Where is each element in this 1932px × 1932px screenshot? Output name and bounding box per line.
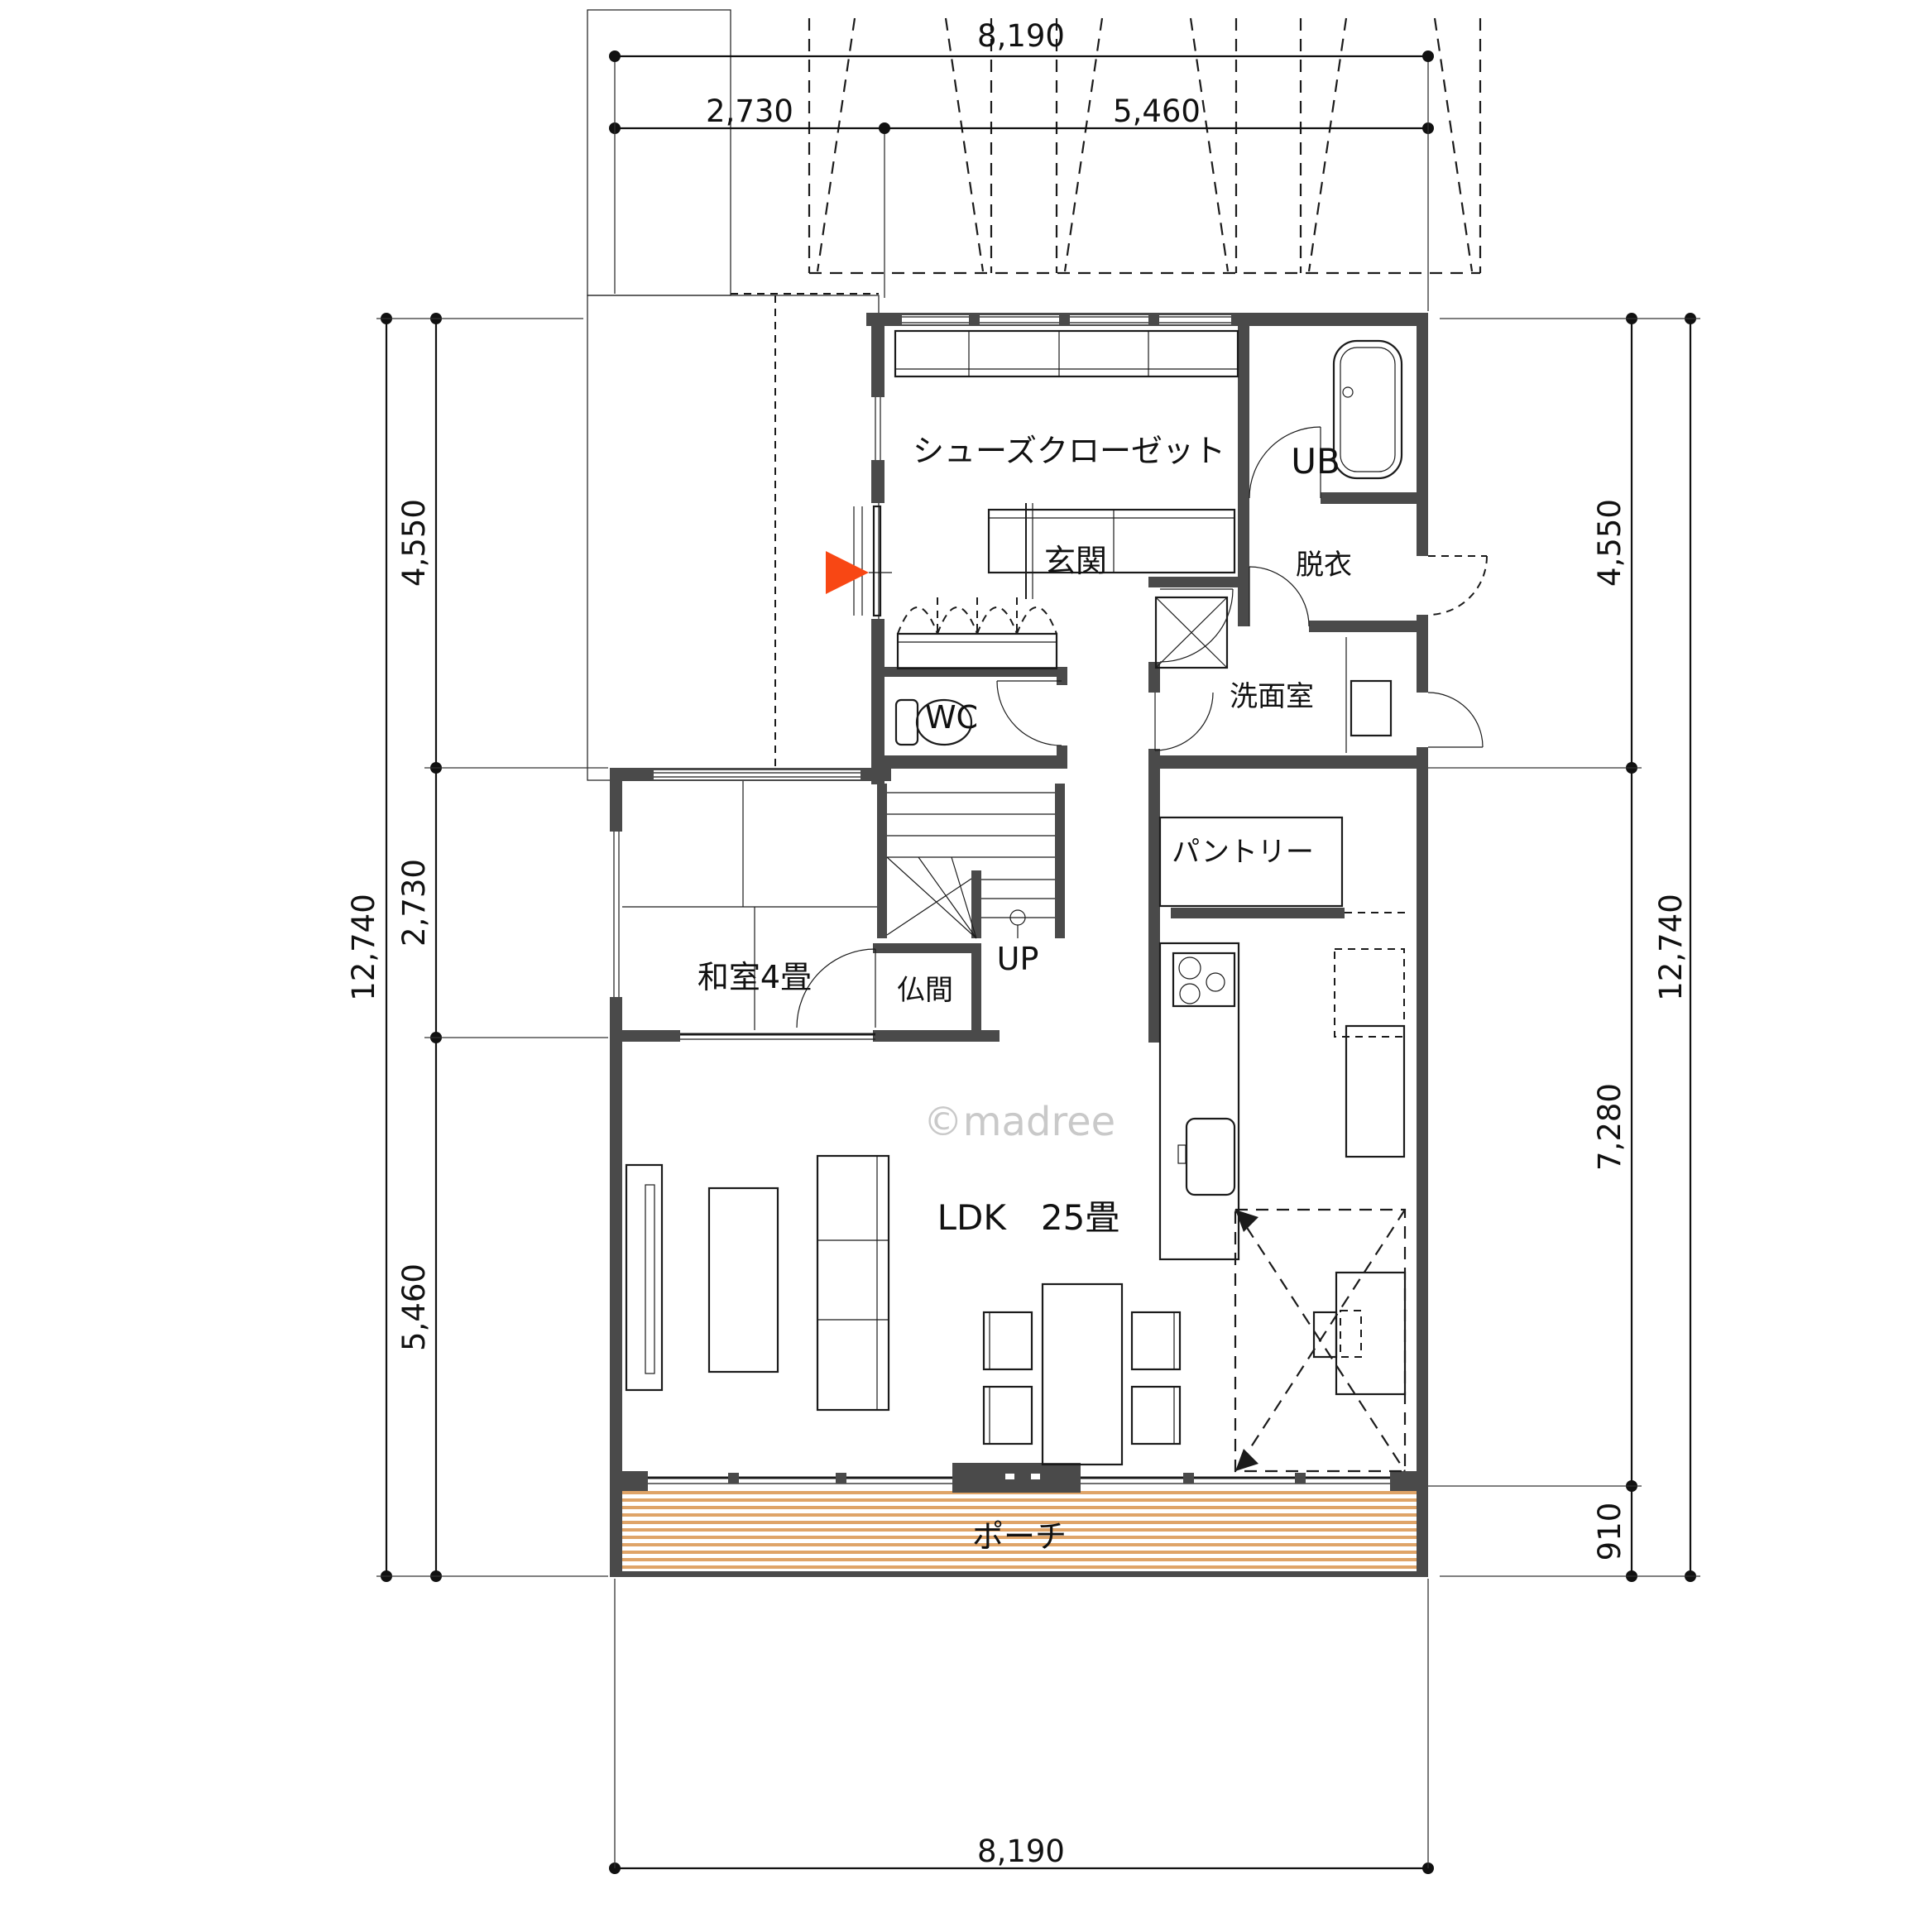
label-dressing: 脱衣 (1296, 549, 1352, 582)
label-shoe-closet: シューズクローゼット (913, 433, 1225, 469)
label-up: UP (997, 941, 1039, 977)
refrigerator-space (1335, 949, 1404, 1037)
dim-left-total: 12,740 (346, 894, 381, 1000)
label-pantry: パントリー (1172, 836, 1314, 869)
tv-board (626, 1165, 662, 1390)
dim-left-seg3: 5,460 (396, 1263, 432, 1351)
dim-top-total: 8,190 (977, 18, 1065, 54)
dining-set (984, 1284, 1180, 1465)
sliding-door-unit (952, 1463, 1081, 1493)
cloak-bifold-doors (898, 597, 1057, 669)
dim-left-seg2: 2,730 (396, 859, 432, 947)
floor-plan: 8,190 2,730 5,460 8,190 12,740 4,550 2,7… (0, 0, 1932, 1932)
dim-right-seg1: 4,550 (1592, 499, 1628, 587)
washing-machine-icon (1156, 597, 1227, 668)
vanity-icon (1346, 637, 1391, 753)
sink-icon (1187, 1119, 1234, 1195)
dim-top-seg2: 5,460 (1113, 93, 1201, 129)
dim-right-seg2: 7,280 (1592, 1083, 1628, 1171)
entrance-door (874, 506, 880, 616)
dim-right-seg3: 910 (1592, 1503, 1628, 1561)
label-altar-room: 仏間 (897, 974, 953, 1007)
fixtures (622, 331, 1405, 1471)
dim-bottom-total: 8,190 (977, 1834, 1065, 1869)
kitchen-counter (1160, 943, 1239, 1259)
genkan-hall-door (1160, 589, 1233, 662)
label-porch: ポーチ (972, 1518, 1067, 1555)
label-japanese-room: 和室4畳 (698, 959, 812, 995)
living-table (709, 1188, 778, 1372)
cupboard (1346, 1026, 1404, 1157)
sofa-icon (817, 1156, 889, 1410)
dim-right-total: 12,740 (1653, 894, 1689, 1000)
shoe-shelf-top (895, 331, 1238, 376)
washroom-exterior-door (1428, 693, 1483, 747)
entrance-arrow-icon (826, 551, 892, 594)
label-washroom: 洗面室 (1230, 680, 1314, 713)
windows (611, 313, 1390, 1493)
dim-left-seg1: 4,550 (396, 499, 432, 587)
entrance-outside-steps (854, 506, 862, 616)
stairs-icon (887, 793, 1055, 938)
void-crossed-area (1235, 1210, 1405, 1471)
washroom-door (1155, 693, 1213, 750)
label-ldk: LDK 25畳 (937, 1197, 1120, 1238)
label-entrance: 玄関 (1044, 543, 1107, 579)
dim-top-seg1: 2,730 (706, 93, 793, 129)
watermark: ©madree (923, 1099, 1115, 1145)
stove-icon (1173, 953, 1234, 1006)
bathtub-icon (1334, 341, 1402, 478)
door-swings (797, 427, 1487, 1028)
floor-plan-drawing: 8,190 2,730 5,460 8,190 12,740 4,550 2,7… (0, 0, 1932, 1932)
label-unit-bath: UB (1291, 441, 1340, 482)
label-wc: WC (925, 699, 978, 736)
dressing-exterior-door (1428, 556, 1487, 615)
wc-door (997, 681, 1062, 745)
